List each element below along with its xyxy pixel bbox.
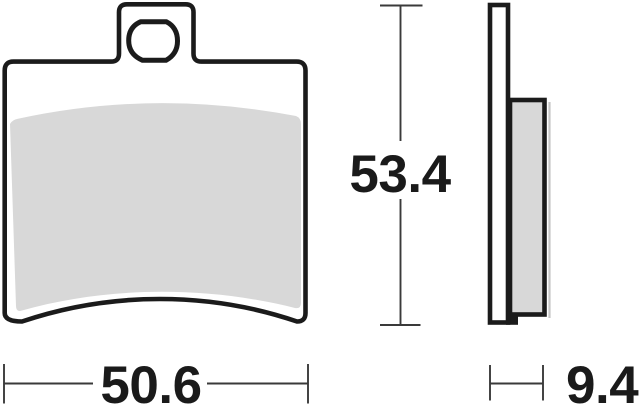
backplate-side [490,5,508,323]
friction-material-side [510,100,545,315]
friction-material-front [10,103,301,311]
brake-pad-drawing: 53.4 50.6 9.4 [0,0,640,405]
side-view [490,5,550,325]
mounting-hole [129,22,178,61]
height-dimension-label: 53.4 [349,145,451,204]
thickness-dimension-label: 9.4 [566,356,639,405]
width-dimension-label: 50.6 [100,356,201,405]
front-view [5,4,306,321]
thickness-dimension [490,365,543,401]
technical-drawing-canvas: 53.4 50.6 9.4 [0,0,640,405]
